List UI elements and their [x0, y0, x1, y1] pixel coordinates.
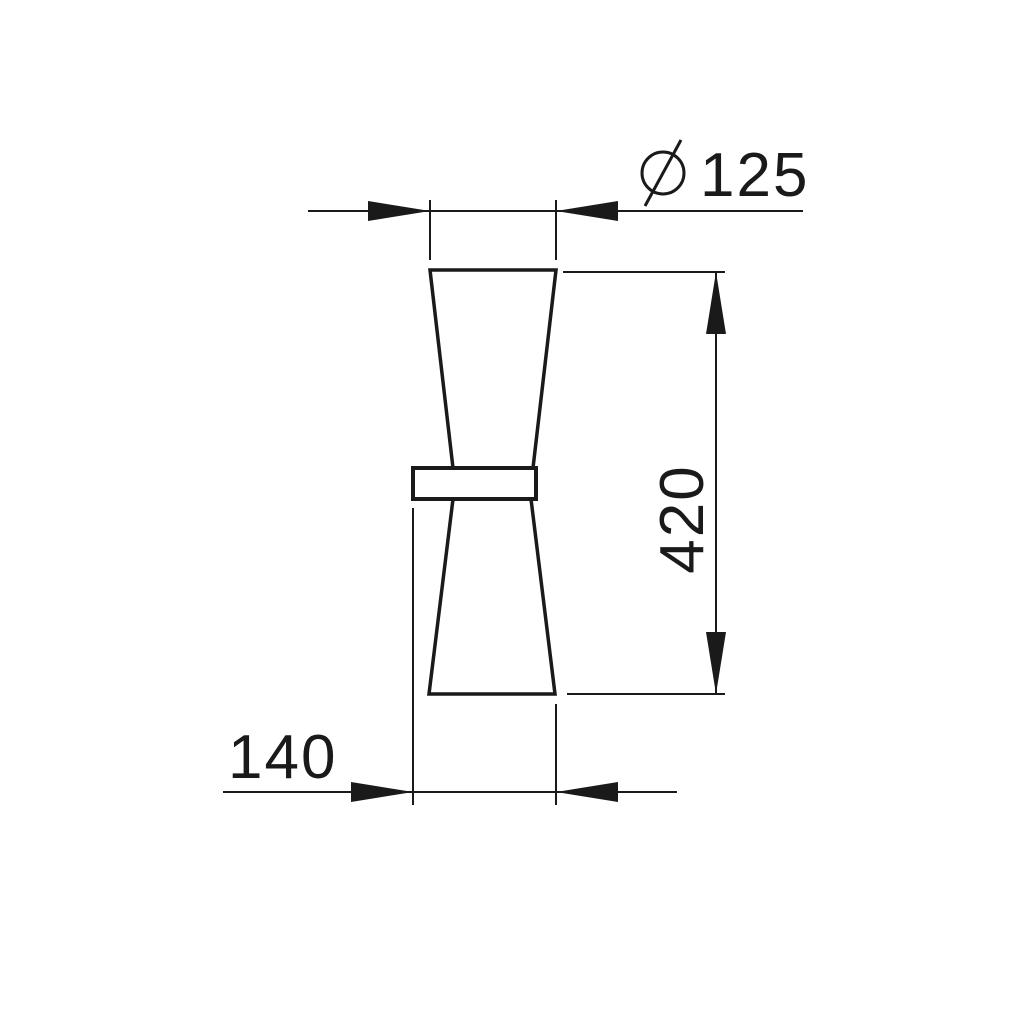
- diameter-sign-icon: [642, 140, 684, 206]
- technical-drawing: 125 420 140: [0, 0, 1024, 1024]
- height-arrow-down-icon: [706, 632, 726, 694]
- bottom-cone: [429, 499, 555, 694]
- height-value: 420: [648, 464, 717, 573]
- diameter-dimension: 125: [308, 140, 809, 260]
- depth-arrow-right-icon: [556, 782, 618, 802]
- depth-value: 140: [228, 723, 337, 792]
- object-outline: [413, 270, 556, 694]
- diameter-sign-slash: [645, 140, 681, 206]
- diameter-arrow-right-icon: [556, 201, 618, 221]
- diameter-arrow-left-icon: [368, 201, 430, 221]
- height-arrow-up-icon: [706, 272, 726, 334]
- drawing-canvas: 125 420 140: [0, 0, 1024, 1024]
- diameter-value: 125: [700, 141, 809, 210]
- height-dimension: 420: [563, 272, 726, 694]
- mounting-band: [413, 468, 536, 499]
- top-cone: [430, 270, 556, 468]
- depth-arrow-left-icon: [351, 782, 413, 802]
